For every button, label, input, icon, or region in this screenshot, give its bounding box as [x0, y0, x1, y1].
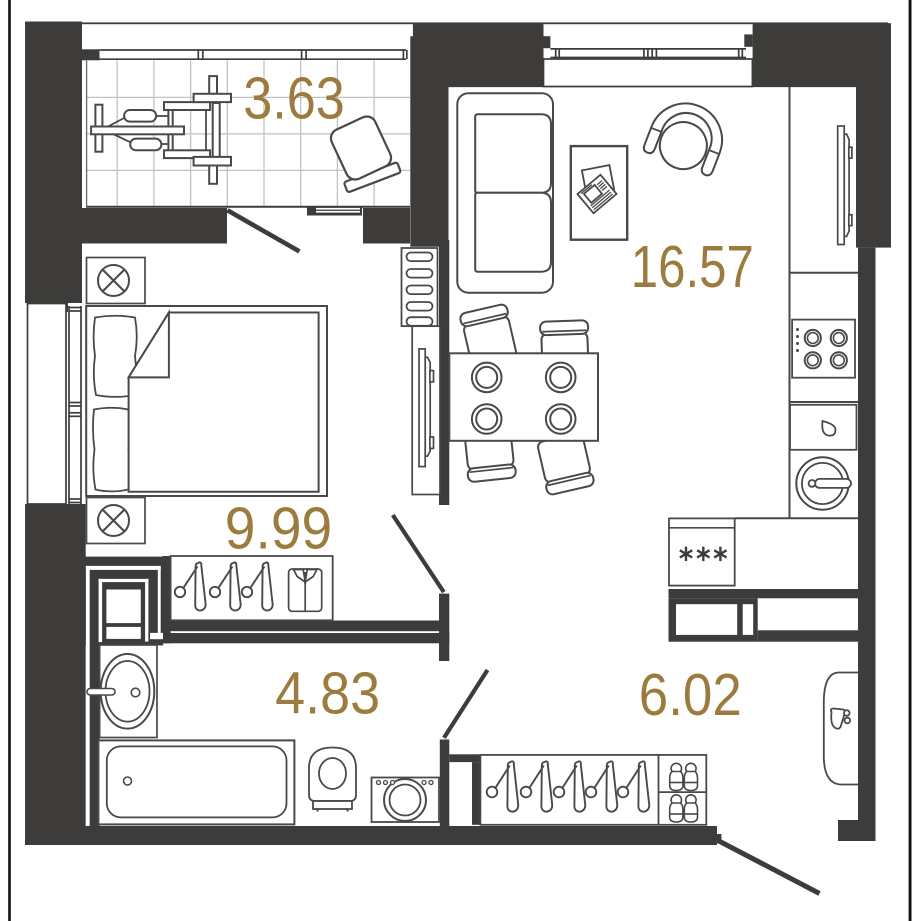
- svg-text:16.57: 16.57: [631, 234, 754, 300]
- svg-text:4.83: 4.83: [275, 660, 380, 726]
- svg-text:3.63: 3.63: [243, 66, 345, 132]
- svg-text:6.02: 6.02: [639, 662, 742, 728]
- svg-text:9.99: 9.99: [225, 495, 332, 561]
